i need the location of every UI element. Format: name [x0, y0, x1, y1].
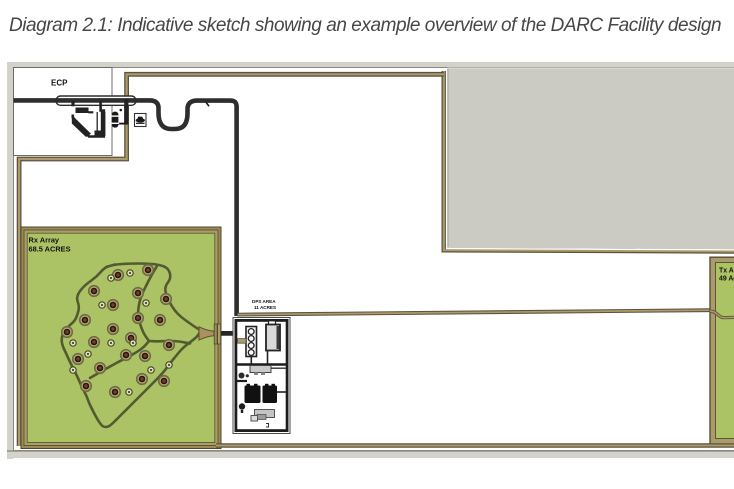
svg-text:ECP: ECP	[51, 79, 68, 88]
svg-text:68.5 ACRES: 68.5 ACRES	[29, 245, 71, 254]
svg-text:11 ACRES: 11 ACRES	[254, 305, 276, 310]
svg-text:49 Ac: 49 Ac	[719, 276, 734, 283]
svg-text:Rx Array: Rx Array	[29, 236, 60, 245]
svg-text:Tx Ar: Tx Ar	[719, 268, 734, 275]
svg-text:DPS AREA: DPS AREA	[252, 299, 276, 304]
